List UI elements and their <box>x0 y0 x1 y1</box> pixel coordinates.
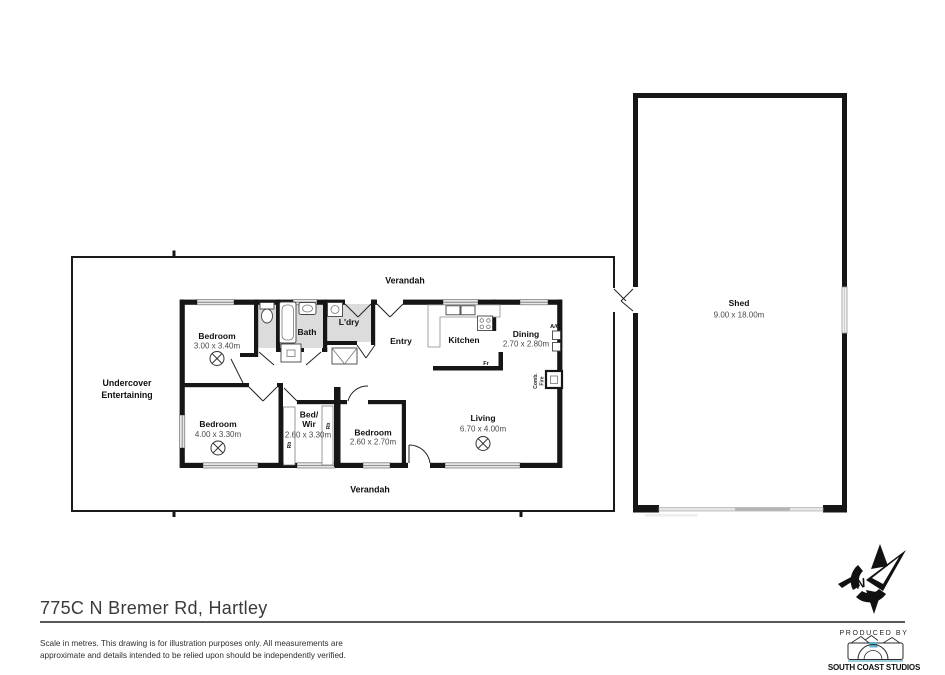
ac-label: A/C <box>550 324 560 330</box>
floor-plan-page: Verandah Verandah Undercover Entertainin… <box>0 0 945 675</box>
disclaimer-line1: Scale in metres. This drawing is for ill… <box>40 639 343 648</box>
shed-roller-door-rear <box>645 508 823 517</box>
shower-icon <box>281 344 301 362</box>
robe-left-label: Rb <box>287 442 293 449</box>
dining-dims: 2.70 x 2.80m <box>503 340 550 349</box>
yard-gate-swing <box>614 289 626 301</box>
studio-logo: PRODUCED BY SOUTH COAST STUDIOS <box>828 630 921 672</box>
disclaimer-line2: approximate and details intended to be r… <box>40 651 346 660</box>
address-title: 775C N Bremer Rd, Hartley <box>40 598 268 618</box>
bedwir-label-line1: Bed/ <box>300 410 319 420</box>
dining-label: Dining <box>513 329 539 339</box>
entry-label: Entry <box>390 336 412 346</box>
shed-label: Shed <box>729 298 750 308</box>
shed-dims: 9.00 x 18.00m <box>714 311 765 320</box>
verandah-top-label: Verandah <box>385 276 425 286</box>
kitchen-sink-icon <box>446 306 460 315</box>
living-label: Living <box>470 413 495 423</box>
bedroom3-dims: 2.60 x 2.70m <box>350 438 397 447</box>
shed-door-swing <box>621 289 633 301</box>
produced-by-label: PRODUCED BY <box>840 630 909 637</box>
bedwir-label-line2: Wir <box>302 419 316 429</box>
toilet-icon <box>260 303 274 324</box>
linen-cupboard-icon <box>332 348 357 364</box>
bedroom2-dims: 4.00 x 3.30m <box>195 430 242 439</box>
stove-icon <box>478 316 493 331</box>
fireplace-icon <box>546 371 562 388</box>
floor-plan-canvas: Verandah Verandah Undercover Entertainin… <box>0 0 945 675</box>
studio-name: SOUTH COAST STUDIOS <box>828 663 921 672</box>
shed-roller-door-side <box>842 287 847 333</box>
bedroom2-label: Bedroom <box>199 419 237 429</box>
verandah-bottom-label: Verandah <box>350 485 390 495</box>
bedroom1-dims: 3.00 x 3.40m <box>194 342 241 351</box>
undercover-label-line2: Entertaining <box>101 390 152 400</box>
basin-icon <box>299 303 316 315</box>
footer: 775C N Bremer Rd, Hartley Scale in metre… <box>40 598 921 672</box>
comb-fire-label-line1: Comb. <box>533 373 539 389</box>
bedroom1-label: Bedroom <box>198 331 236 341</box>
fridge-label: Fr <box>483 361 489 367</box>
camera-icon <box>848 636 903 662</box>
undercover-label-line1: Undercover <box>103 378 152 388</box>
bedroom3-label: Bedroom <box>354 428 392 438</box>
kitchen-label: Kitchen <box>448 335 479 345</box>
ldry-label: L'dry <box>339 317 360 327</box>
bath-label: Bath <box>298 327 317 337</box>
laundry-trough-icon <box>328 303 343 317</box>
bedwir-dims: 2.60 x 3.30m <box>285 431 332 440</box>
robe-right-label: Rb <box>326 423 332 430</box>
living-back-door-arc <box>409 445 430 463</box>
living-dims: 6.70 x 4.00m <box>460 425 507 434</box>
compass-n-letter: N <box>854 575 867 592</box>
north-compass-icon: N <box>838 544 906 614</box>
bedroom3-door-arc <box>348 386 368 401</box>
bathtub-icon <box>280 302 297 343</box>
comb-fire-label-line2: Fire <box>540 376 546 385</box>
